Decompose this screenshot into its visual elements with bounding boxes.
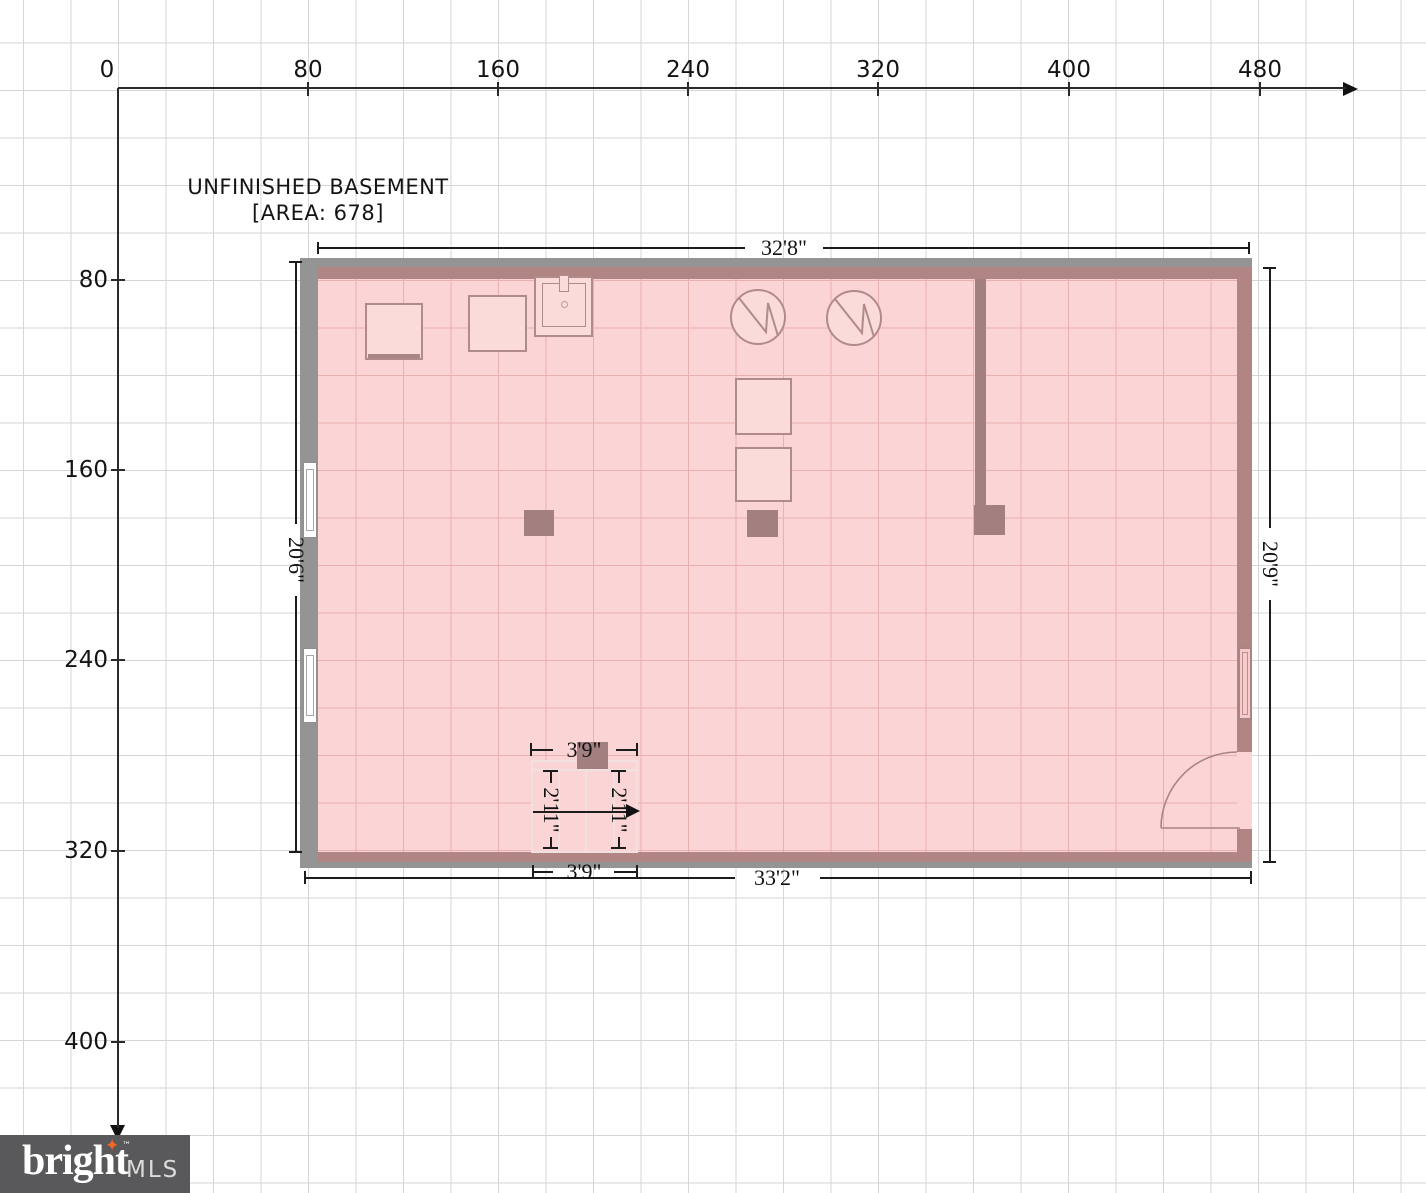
dim-left-height: 20'6" [284, 520, 308, 600]
x-tick [307, 82, 309, 96]
dim-line [533, 871, 553, 873]
x-axis-line [118, 87, 1346, 89]
y-tick [111, 1041, 125, 1043]
logo-suffix-text: MLS [126, 1157, 179, 1183]
dim-tick [1263, 861, 1276, 863]
dim-tick [1248, 242, 1250, 254]
x-axis-label: 320 [856, 57, 900, 83]
room-area-label: [AREA: 678] [118, 201, 518, 225]
dim-line [318, 247, 745, 249]
water-heater-icon [731, 290, 785, 344]
dim-stair-run-right: 2'11" [607, 775, 631, 845]
dim-line [1269, 600, 1271, 862]
dim-right-height: 20'9" [1258, 524, 1282, 604]
dim-tick [530, 743, 532, 756]
floorplan-canvas: 0 80 160 240 320 400 480 80 160 240 320 … [0, 0, 1426, 1193]
x-axis-arrow-icon [1343, 82, 1358, 96]
y-axis-label: 320 [48, 838, 108, 864]
x-axis-label: 400 [1047, 57, 1091, 83]
dim-tick [611, 847, 626, 849]
x-tick [497, 82, 499, 96]
y-axis-label: 240 [48, 647, 108, 673]
dim-line [295, 596, 297, 852]
dim-line [305, 877, 735, 879]
y-tick [111, 279, 125, 281]
dim-line [823, 247, 1250, 249]
dim-tick [532, 865, 534, 878]
dim-stair-width-bottom: 3'9" [554, 860, 614, 884]
y-tick [111, 659, 125, 661]
y-tick [111, 850, 125, 852]
x-tick [687, 82, 689, 96]
dim-tick [1250, 871, 1252, 884]
dim-line [616, 749, 638, 751]
dim-bottom-width: 33'2" [737, 866, 817, 890]
dim-top-width: 32'8" [744, 236, 824, 260]
x-tick [877, 82, 879, 96]
dim-tick [543, 770, 558, 772]
x-axis-label: 240 [666, 57, 710, 83]
y-axis-label: 160 [48, 457, 108, 483]
room-title: UNFINISHED BASEMENT [118, 175, 518, 199]
dim-tick [317, 242, 319, 254]
x-tick [1068, 82, 1070, 96]
dim-tick [611, 770, 626, 772]
dim-line [614, 871, 638, 873]
x-tick [1259, 82, 1261, 96]
y-axis-label: 80 [48, 267, 108, 293]
dim-tick [304, 871, 306, 884]
dim-tick [1263, 267, 1276, 269]
y-tick [111, 469, 125, 471]
x-axis-label: 80 [293, 57, 322, 83]
dim-line [1269, 268, 1271, 528]
dim-line [295, 262, 297, 524]
dim-tick [636, 865, 638, 878]
x-axis-label: 480 [1238, 57, 1282, 83]
dim-stair-run-left: 2'11" [539, 775, 563, 845]
x-axis-label: 160 [476, 57, 520, 83]
x-axis-label: 0 [100, 57, 115, 83]
water-heater-icon [827, 291, 881, 345]
logo-trademark: ™ [122, 1141, 131, 1151]
dim-line [531, 749, 553, 751]
dim-stair-width-top: 3'9" [554, 738, 614, 762]
brand-logo: bright ✦ ™ MLS [0, 1135, 190, 1193]
dim-line [820, 877, 1252, 879]
door-swing-icon [1161, 752, 1240, 828]
dim-tick [289, 851, 302, 853]
y-axis-label: 400 [48, 1029, 108, 1055]
dim-tick [636, 743, 638, 756]
dim-tick [289, 261, 302, 263]
logo-star-icon: ✦ [105, 1136, 119, 1156]
dim-tick [543, 847, 558, 849]
y-axis-line [117, 88, 119, 1128]
